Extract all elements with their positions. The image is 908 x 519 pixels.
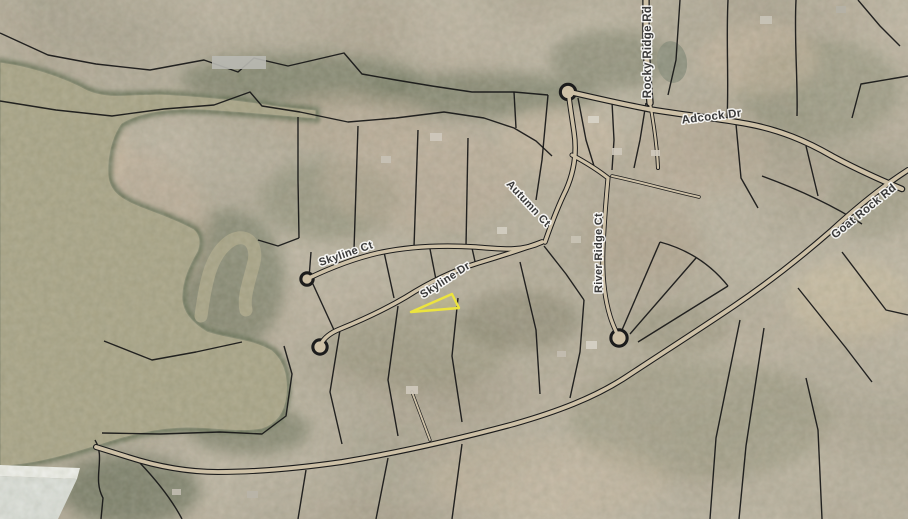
map-canvas[interactable]: Rocky Ridge RdAdcock DrAutumn CtSkyline … [0, 0, 908, 519]
building [571, 236, 581, 243]
aerial-parcel-map[interactable]: Rocky Ridge RdAdcock DrAutumn CtSkyline … [0, 0, 908, 519]
road-label-river-ridge-ct: River Ridge Ct [593, 213, 605, 293]
building [612, 148, 622, 155]
building [588, 116, 599, 123]
building [430, 133, 442, 141]
building [651, 150, 660, 156]
road-label-rocky-ridge-rd: Rocky Ridge Rd [642, 6, 654, 98]
culdesac-pavement-river-ridge-bulb [612, 331, 625, 344]
building [760, 16, 772, 24]
building [586, 341, 597, 349]
building [406, 386, 418, 394]
building [497, 227, 507, 234]
parcel-boundary [727, 0, 728, 120]
building [212, 56, 266, 69]
building [836, 6, 846, 13]
building [172, 489, 181, 495]
building [381, 156, 391, 163]
building [247, 491, 258, 498]
building [557, 351, 566, 357]
